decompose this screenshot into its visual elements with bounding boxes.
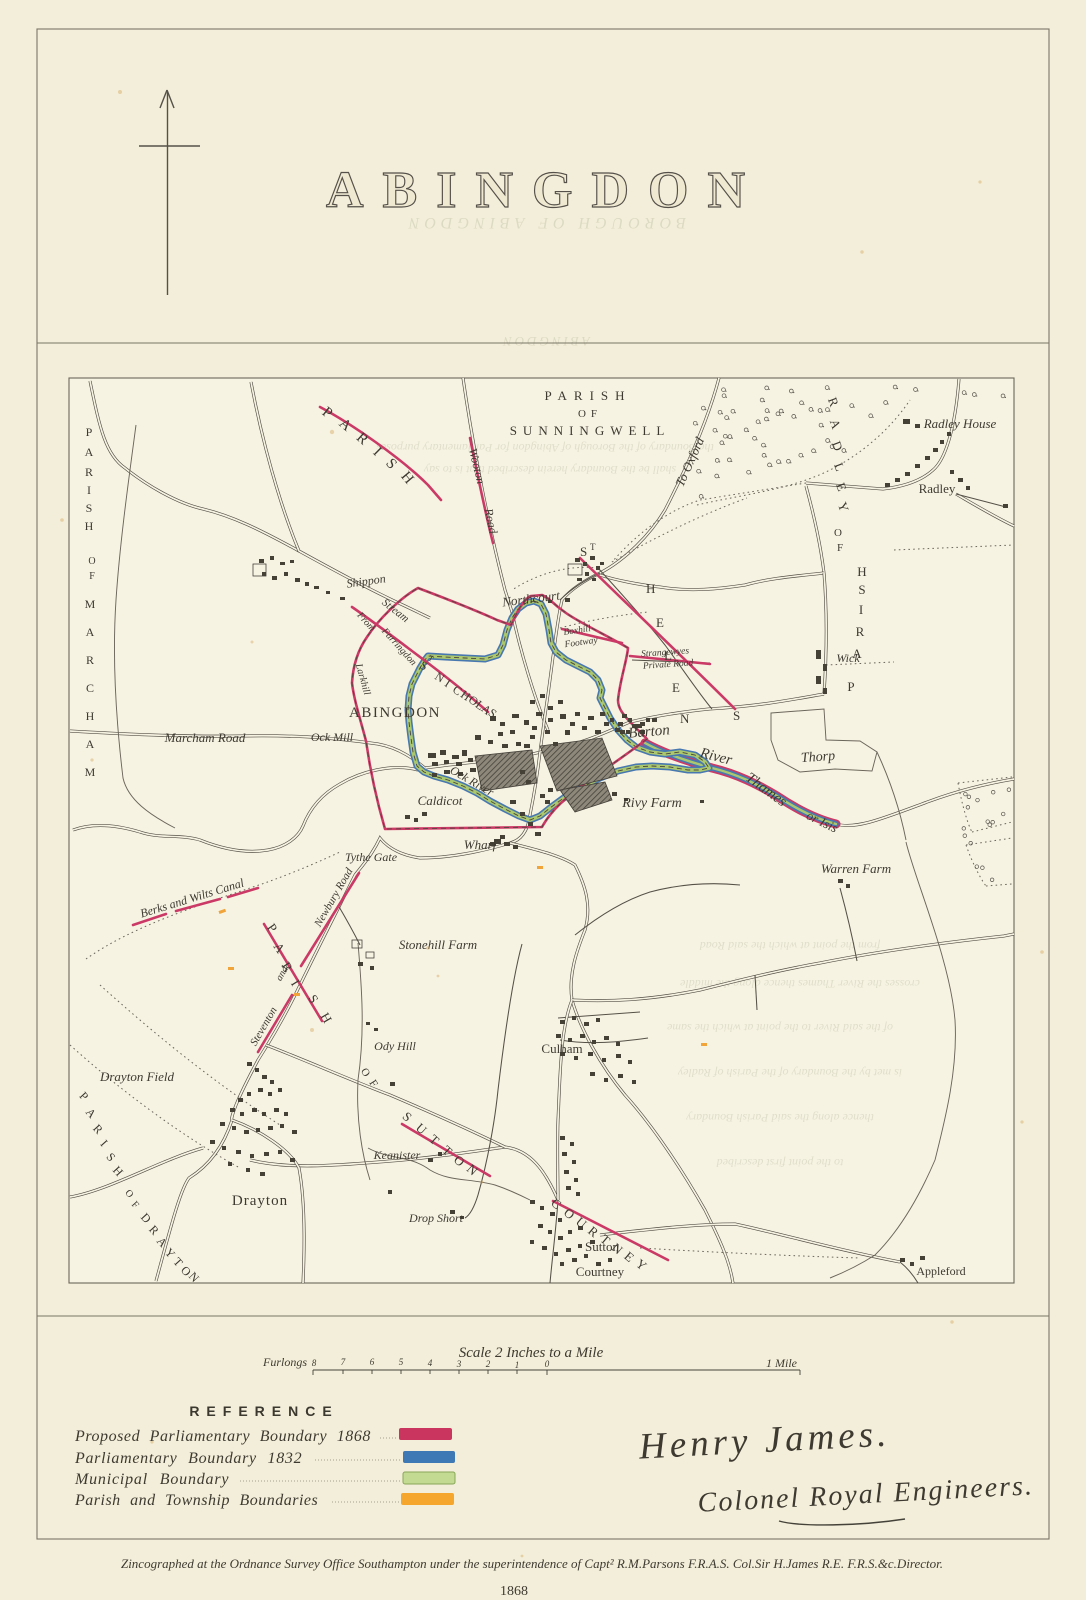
svg-text:Radley: Radley [919,481,956,496]
svg-text:A: A [85,445,94,459]
svg-text:M: M [85,765,96,779]
svg-text:N: N [680,711,690,726]
svg-text:Warren Farm: Warren Farm [821,861,891,876]
svg-text:OF: OF [578,408,602,420]
svg-text:Parish and Township Boundar: Parish and Township Boundaries [74,1492,318,1509]
svg-text:Stonehill Farm: Stonehill Farm [399,937,477,952]
svg-text:Culham: Culham [541,1041,582,1056]
svg-text:S: S [580,544,587,559]
svg-text:E: E [656,615,664,630]
svg-text:Keanister: Keanister [373,1148,421,1162]
svg-text:thence along the said Parish B: thence along the said Parish Boundary [686,1111,874,1125]
svg-text:S: S [858,582,865,597]
svg-text:to the point first described: to the point first described [716,1156,844,1170]
svg-text:3: 3 [456,1359,462,1369]
svg-text:Scale 2 Inches to a Mile: Scale 2 Inches to a Mile [459,1345,604,1361]
svg-text:Proposed Parliamentary Bound: Proposed Parliamentary Boundary 1868 [74,1428,371,1445]
svg-text:ABINGDON: ABINGDON [326,162,764,219]
svg-text:Drop Short: Drop Short [408,1211,464,1225]
svg-text:8: 8 [312,1358,317,1368]
svg-text:SUNNINGWELL: SUNNINGWELL [510,423,671,438]
svg-text:M: M [85,597,96,611]
svg-text:ABINGDON: ABINGDON [349,705,441,721]
svg-text:H: H [857,564,866,579]
svg-text:A: A [86,625,95,639]
svg-text:Zincographed at the Ordnance S: Zincographed at the Ordnance Survey Offi… [121,1556,943,1571]
svg-text:Courtney: Courtney [576,1264,625,1279]
svg-text:of the said River to the point: of the said River to the point at which … [666,1021,893,1035]
svg-text:H: H [86,709,95,723]
svg-text:S: S [86,501,93,515]
svg-text:Parliamentary Boundary 1832: Parliamentary Boundary 1832 [74,1450,302,1467]
svg-text:Caldicot: Caldicot [418,793,463,808]
svg-text:Rivy Farm: Rivy Farm [621,796,681,811]
svg-text:1 Mile: 1 Mile [766,1356,798,1370]
svg-text:Radley House: Radley House [923,416,997,431]
svg-text:Municipal Boundary: Municipal Boundary [74,1471,229,1488]
svg-text:E: E [672,680,680,695]
svg-text:P: P [86,425,93,439]
svg-text:the Boundary of the Borough of: the Boundary of the Borough of Abingdon … [376,441,714,455]
svg-text:C: C [86,681,94,695]
svg-text:Drayton: Drayton [232,1193,288,1209]
svg-text:1: 1 [515,1360,520,1370]
svg-text:Marcham Road: Marcham Road [164,730,246,745]
svg-text:O: O [834,527,842,539]
svg-text:6: 6 [370,1357,375,1367]
svg-text:Wick: Wick [836,651,860,665]
svg-text:shall be the Boundary herein d: shall be the Boundary herein described t… [423,463,676,477]
svg-text:Tythe Gate: Tythe Gate [345,850,398,864]
svg-text:I: I [859,602,863,617]
svg-text:P: P [847,679,854,694]
svg-text:S: S [733,708,740,723]
svg-text:REFERENCE: REFERENCE [189,1403,338,1419]
svg-text:Sutton: Sutton [585,1239,619,1254]
svg-text:PARISH: PARISH [544,388,631,403]
svg-text:R: R [86,653,94,667]
svg-text:F: F [837,542,843,554]
svg-text:I: I [87,483,91,497]
svg-text:R: R [856,624,865,639]
svg-text:ABINGDON: ABINGDON [500,334,591,349]
svg-text:Drayton Field: Drayton Field [99,1069,175,1084]
svg-text:R: R [85,465,93,479]
svg-text:O: O [88,556,95,567]
svg-text:7: 7 [341,1357,346,1367]
svg-text:crosses the River Thames thenc: crosses the River Thames thence along th… [679,977,920,991]
svg-text:H: H [646,581,655,596]
svg-text:Wharf: Wharf [464,837,499,852]
svg-text:1868: 1868 [500,1584,528,1599]
svg-text:T: T [590,542,596,552]
svg-text:5: 5 [399,1357,404,1367]
svg-text:2: 2 [486,1359,491,1369]
svg-text:H: H [85,519,94,533]
svg-text:4: 4 [428,1358,433,1368]
svg-text:A: A [86,737,95,751]
svg-text:0: 0 [545,1359,550,1369]
svg-text:Appleford: Appleford [916,1264,965,1278]
svg-text:F: F [89,571,95,582]
svg-text:Furlongs: Furlongs [262,1355,307,1369]
svg-text:Ody Hill: Ody Hill [374,1039,416,1053]
svg-text:is met by the Boundary of the: is met by the Boundary of the Parish of … [677,1066,902,1080]
svg-text:Ock Mill: Ock Mill [311,730,354,744]
svg-text:Thorp: Thorp [800,749,835,766]
